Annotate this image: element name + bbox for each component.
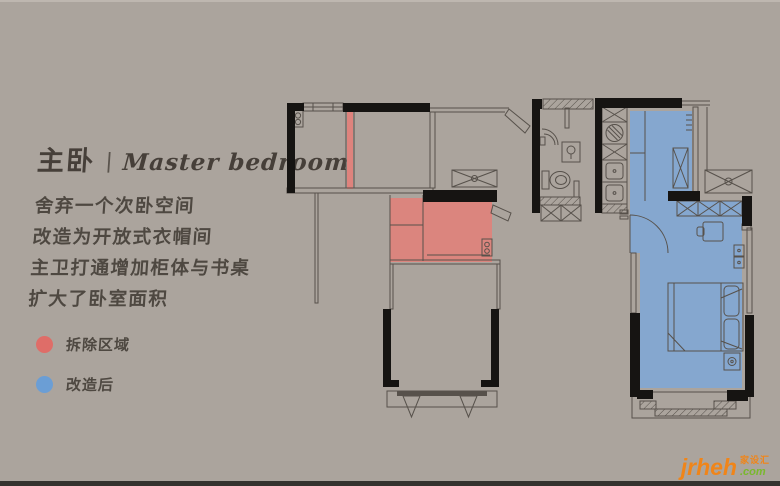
title-separator: | (105, 148, 113, 174)
top-edge-line (0, 0, 780, 2)
brand-tld: .com (740, 467, 766, 478)
ac-unit (705, 170, 752, 193)
legend-item-demolition: 拆除区域 (36, 333, 130, 355)
bottom-bar (0, 481, 780, 486)
renovated-color-dot (36, 376, 53, 393)
legend-label: 改造后 (65, 374, 114, 395)
description-line: 舍弃一个次卧空间 (34, 190, 256, 221)
brand-chinese: 家设汇 (740, 456, 770, 465)
watermark-logo: jrheh 家设汇 .com (681, 456, 770, 479)
title-chinese: 主卧 (36, 139, 97, 178)
description-line: 主卫打通增加柜体与书桌 (29, 252, 251, 283)
demolition-color-dot (36, 336, 53, 353)
before-floorplan-svg (283, 95, 539, 427)
brand-text: jrheh (681, 456, 737, 479)
cabinet-column (602, 107, 627, 213)
legend-label: 拆除区域 (65, 334, 130, 355)
bathroom (540, 108, 581, 221)
window-sill (397, 391, 487, 396)
description-line: 扩大了卧室面积 (27, 283, 249, 314)
description-line: 改造为开放式衣帽间 (32, 221, 254, 252)
legend-item-renovated: 改造后 (36, 373, 130, 395)
toilet (542, 171, 549, 189)
legend: 拆除区域 改造后 (36, 333, 130, 413)
floor-plan-before (283, 95, 539, 427)
renovation-slide: { "page": { "background": "#aba49d", "fo… (0, 0, 780, 486)
floor-plan-after (528, 93, 768, 433)
ac-unit (452, 170, 497, 187)
description-block: 舍弃一个次卧空间 改造为开放式衣帽间 主卫打通增加柜体与书桌 扩大了卧室面积 (27, 190, 256, 314)
after-floorplan-svg (528, 93, 768, 433)
